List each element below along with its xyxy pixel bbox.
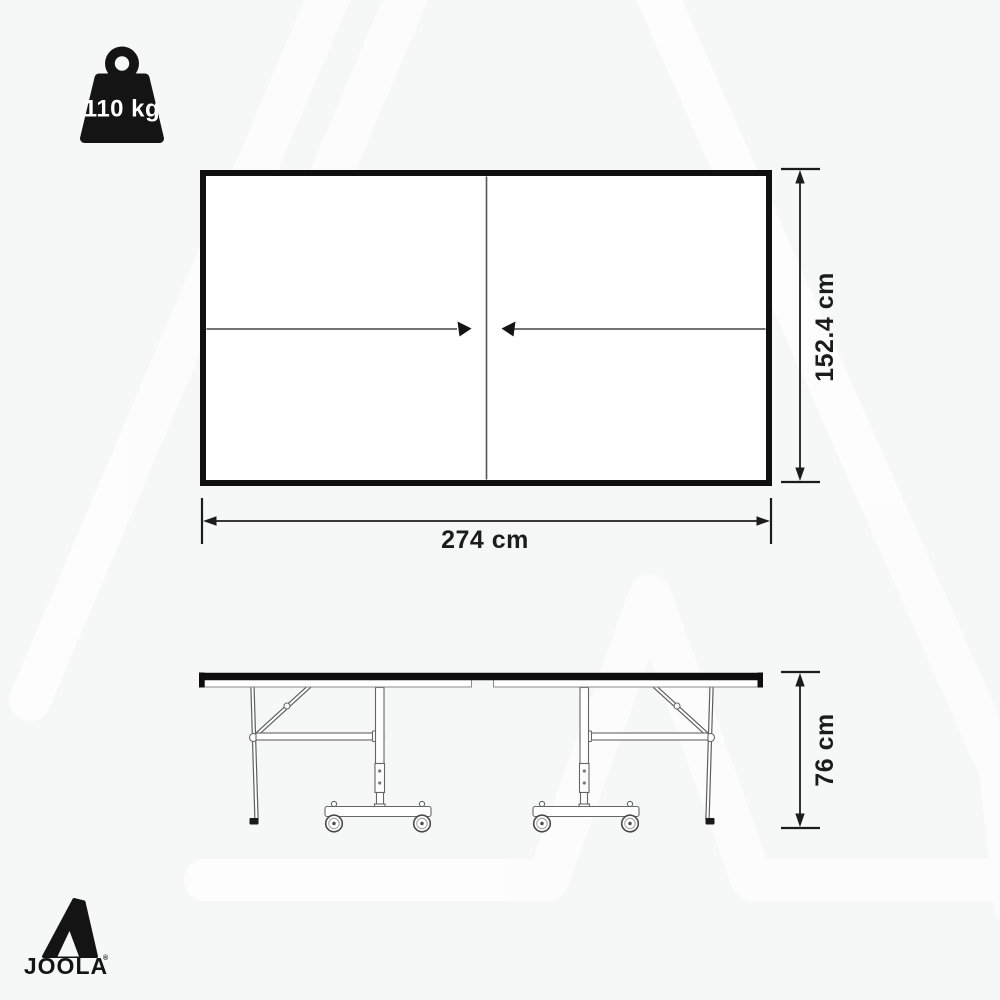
weight-value-label: 110 kg [84, 96, 160, 123]
diagram-canvas: 110 kg 152.4 cm 274 cm [0, 0, 1000, 1000]
center-leg-upper [376, 688, 385, 764]
weight-icon-ring-hole [115, 56, 129, 70]
trolley-bolt [419, 801, 424, 806]
weight-badge: 110 kg [84, 47, 160, 139]
tabletop-end-cap-left [199, 673, 205, 688]
joola-wordmark: JOOLA [24, 953, 108, 979]
joola-registered-mark: ® [103, 954, 109, 962]
trolley-bolt [331, 801, 336, 806]
joola-logo: JOOLA ® [24, 900, 109, 980]
length-dimension: 274 cm [202, 498, 771, 554]
length-dim-arrow-left [203, 516, 217, 525]
center-leg-adjuster [375, 764, 385, 793]
outer-leg-foot [250, 818, 259, 825]
length-dim-label: 274 cm [441, 526, 529, 554]
adjuster-bolt [378, 769, 381, 772]
tabletop-end-cap-right [758, 673, 764, 688]
dimension-diagram: 110 kg 152.4 cm 274 cm [0, 0, 1000, 1000]
width-dim-arrow-up [795, 170, 804, 184]
height-dimension: 76 cm [781, 672, 839, 828]
length-dim-arrow-right [757, 516, 771, 525]
wheel-trolley-bar [325, 807, 431, 817]
height-dim-label: 76 cm [811, 713, 839, 786]
height-dim-arrow-down [795, 814, 804, 828]
undercarriage-left [250, 684, 432, 832]
width-dim-arrow-down [795, 468, 804, 482]
width-dim-label: 152.4 cm [811, 272, 839, 382]
adjuster-bolt [378, 781, 381, 784]
height-dim-arrow-up [795, 673, 804, 687]
horizontal-brace [256, 733, 377, 740]
table-top-view [203, 173, 769, 483]
brace-fitting [284, 703, 290, 709]
